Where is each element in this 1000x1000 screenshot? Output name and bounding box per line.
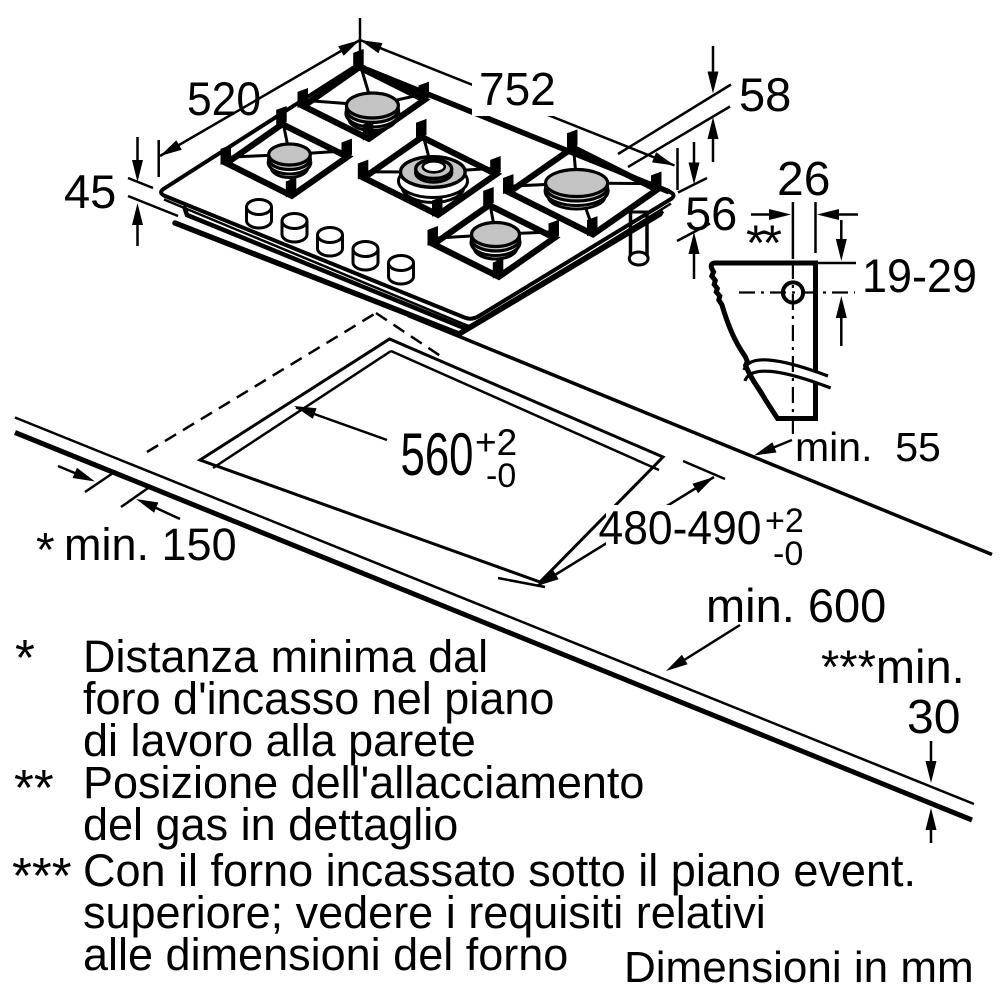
svg-text:Dimensioni in mm: Dimensioni in mm — [624, 943, 974, 992]
svg-text:min. 150: min. 150 — [64, 519, 237, 570]
svg-text:26: 26 — [777, 153, 830, 206]
svg-text:***min.: ***min. — [821, 640, 965, 693]
svg-text:520: 520 — [187, 72, 261, 125]
svg-text:*: * — [15, 629, 35, 686]
svg-text:19-29: 19-29 — [862, 249, 977, 302]
svg-text:**: ** — [14, 759, 54, 816]
svg-text:alle dimensioni del forno: alle dimensioni del forno — [83, 929, 568, 980]
svg-text:***: *** — [12, 847, 72, 904]
svg-text:752: 752 — [479, 63, 556, 115]
svg-text:min. 55: min. 55 — [795, 424, 941, 470]
svg-text:**: ** — [746, 215, 781, 271]
svg-text:560: 560 — [401, 421, 474, 488]
svg-text:58: 58 — [739, 68, 791, 121]
svg-text:-0: -0 — [486, 457, 516, 495]
svg-text:45: 45 — [64, 165, 116, 218]
svg-text:56: 56 — [685, 187, 737, 240]
svg-text:-0: -0 — [773, 535, 803, 573]
svg-text:del gas in dettaglio: del gas in dettaglio — [83, 799, 458, 850]
svg-text:480-490: 480-490 — [599, 501, 762, 554]
svg-text:*: * — [36, 524, 55, 577]
svg-text:30: 30 — [907, 691, 960, 744]
svg-text:min. 600: min. 600 — [706, 579, 886, 632]
